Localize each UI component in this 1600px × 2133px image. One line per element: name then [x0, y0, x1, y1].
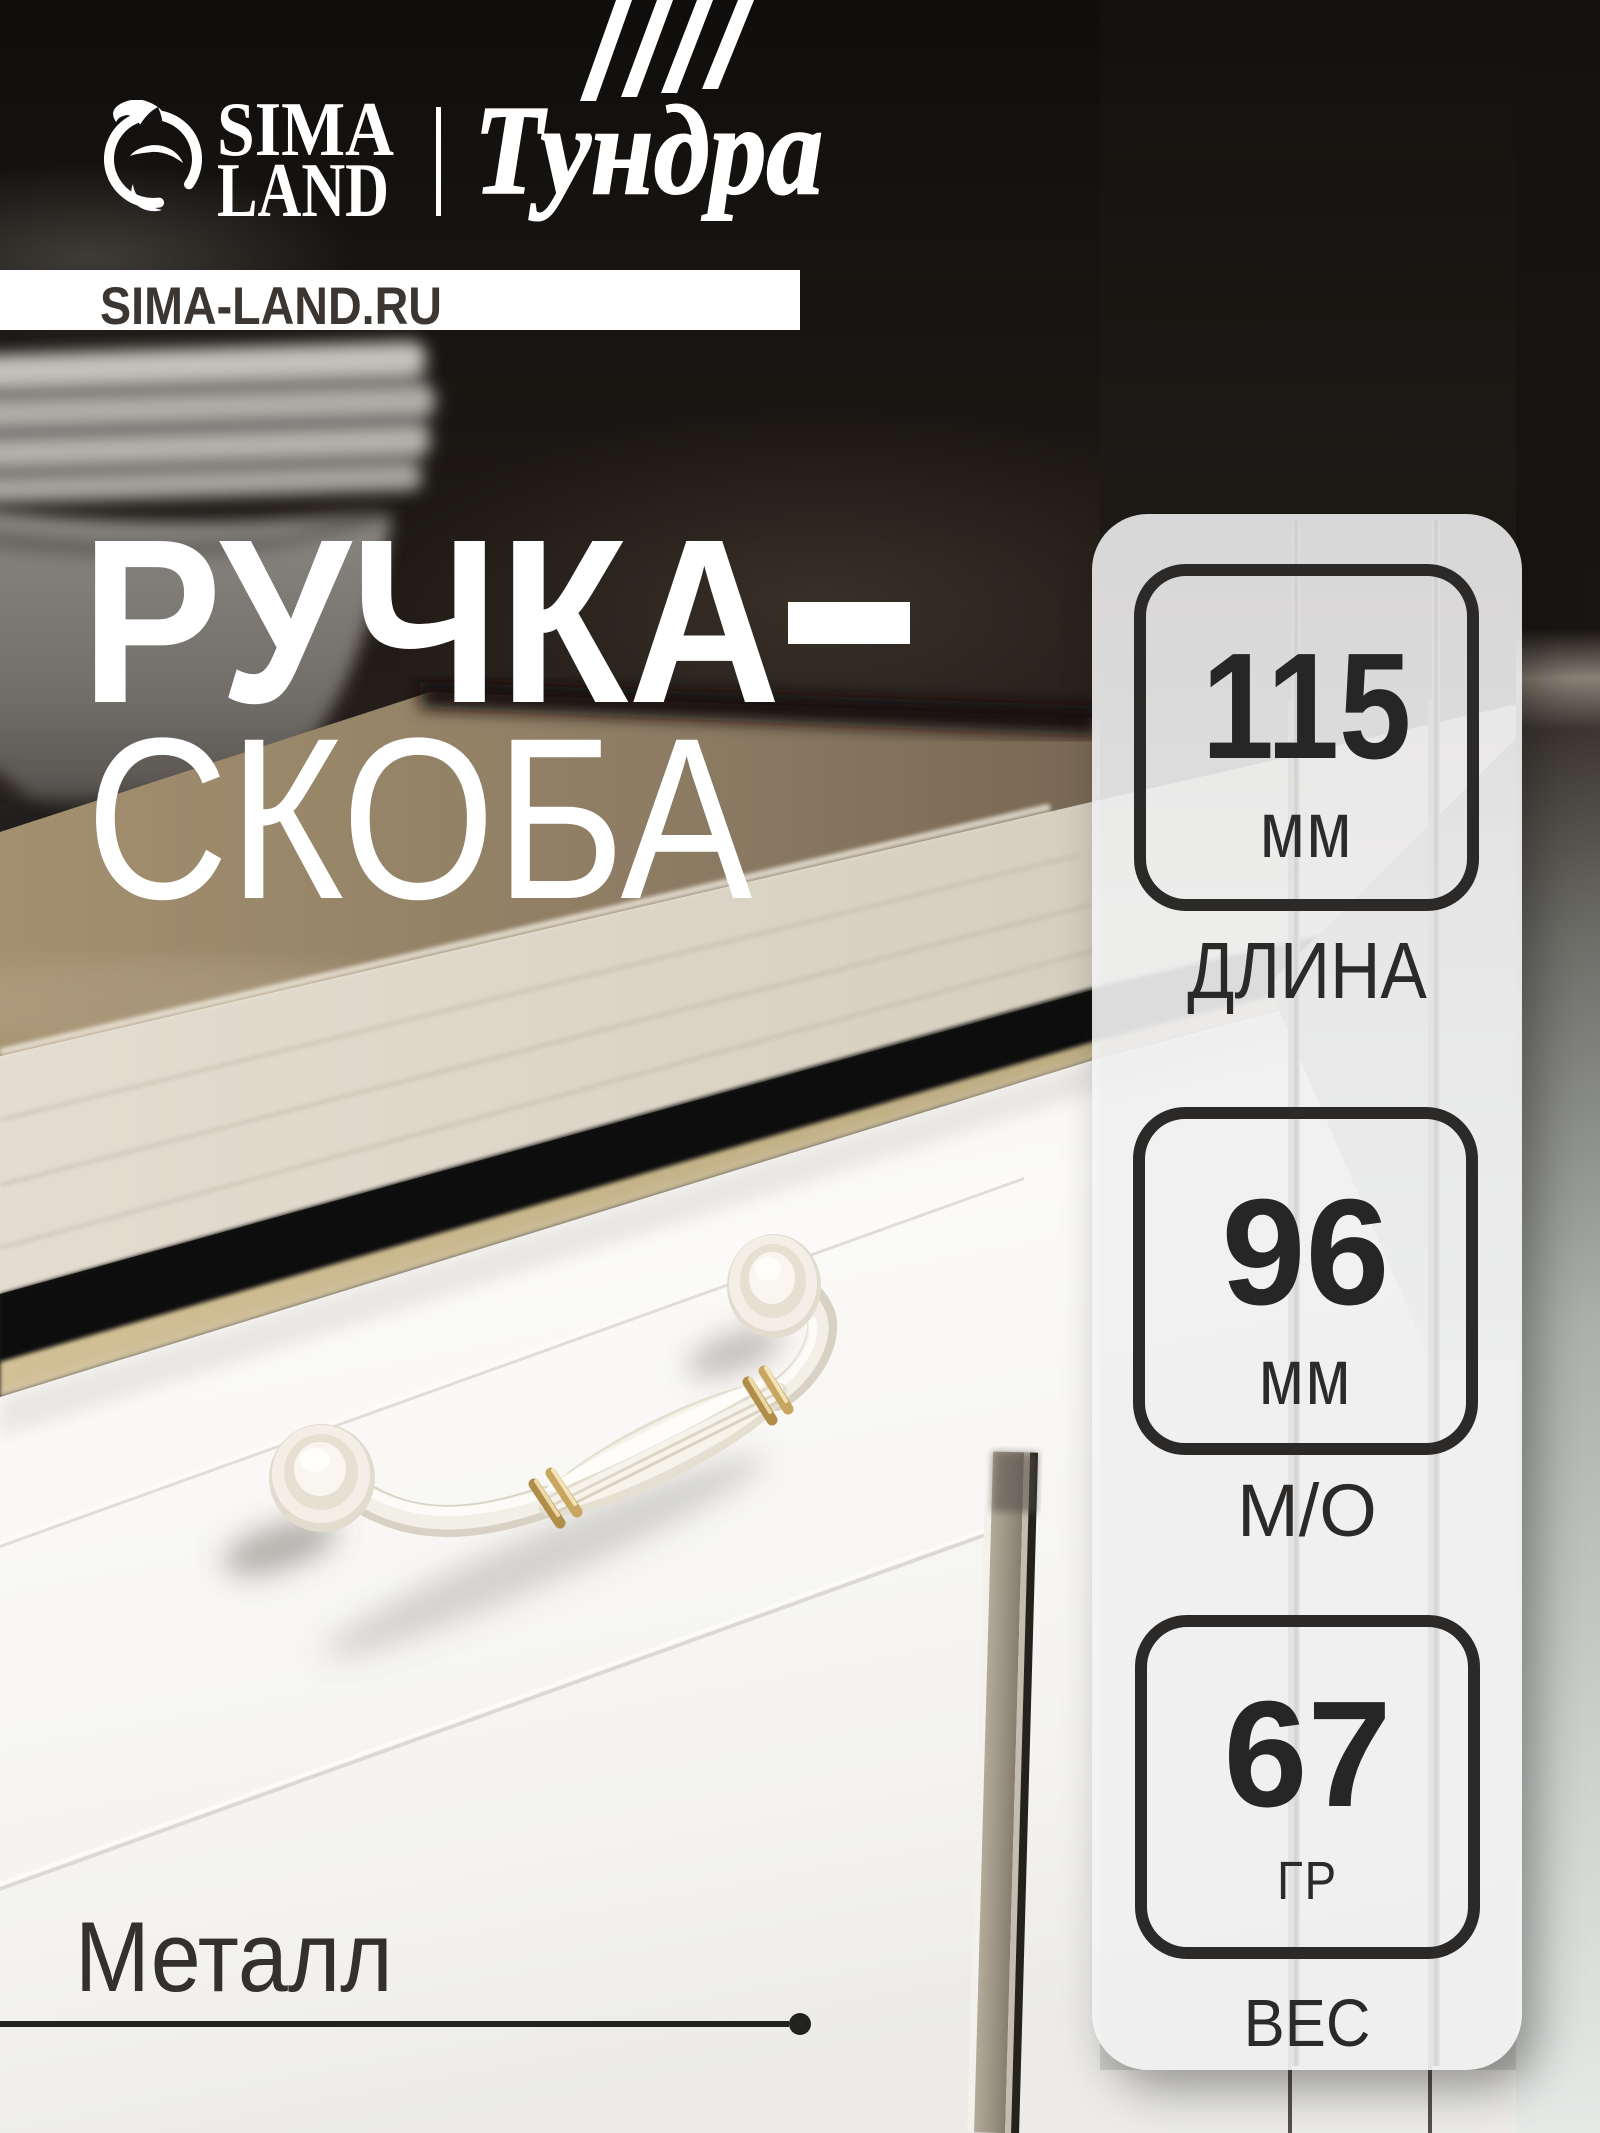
svg-text:LAND: LAND — [217, 147, 389, 228]
svg-text:Тундра: Тундра — [474, 81, 823, 221]
